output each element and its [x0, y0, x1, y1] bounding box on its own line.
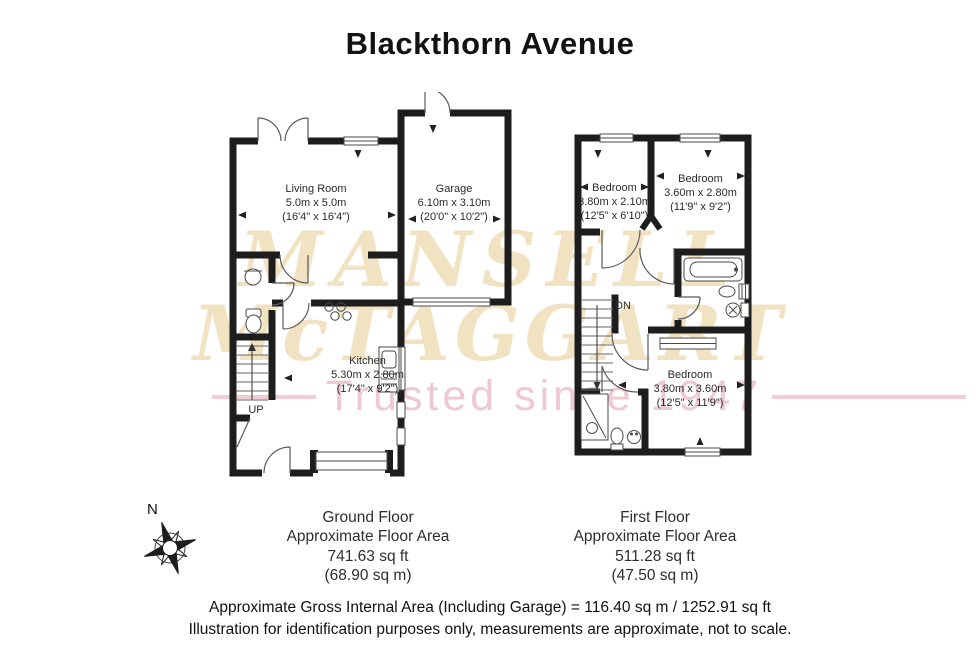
room-size-metric: 5.30m x 2.80m — [295, 368, 440, 382]
area-sqft: 741.63 sq ft — [258, 547, 478, 566]
room-name: Living Room — [231, 182, 401, 196]
compass-rose-icon — [136, 514, 206, 582]
ground-floor-stairs — [236, 343, 268, 400]
shower-room-sink-icon — [628, 431, 641, 444]
room-size-imperial: (17'4" x 9'2") — [295, 382, 440, 396]
ground-floor-walls — [230, 110, 512, 477]
room-size-imperial: (11'9" x 9'2") — [638, 200, 763, 214]
wc-toilet-icon — [246, 309, 261, 333]
compass-north-label: N — [147, 501, 158, 518]
area-label: Approximate Floor Area — [545, 527, 765, 546]
bathroom-sink-icon — [719, 284, 749, 299]
room-size-imperial: (20'0" x 10'2") — [395, 210, 513, 224]
room-size-imperial: (12'5" x 11'9") — [625, 396, 755, 410]
room-label-bedroom-3: Bedroom 3.80m x 3.60m (12'5" x 11'9") — [625, 368, 755, 410]
watermark-rule-right — [772, 395, 966, 399]
bath-icon — [684, 258, 742, 281]
gross-area-text: Approximate Gross Internal Area (Includi… — [0, 599, 980, 617]
shower-room-toilet-icon — [611, 428, 623, 450]
ground-floor-plan — [227, 92, 519, 484]
room-label-living-room: Living Room 5.0m x 5.0m (16'4" x 16'4") — [231, 182, 401, 224]
room-size-metric: 3.80m x 3.60m — [625, 382, 755, 396]
disclaimer-text: Illustration for identification purposes… — [0, 621, 980, 639]
bathroom-toilet-icon — [726, 303, 749, 317]
room-size-imperial: (16'4" x 16'4") — [231, 210, 401, 224]
room-label-kitchen: Kitchen 5.30m x 2.80m (17'4" x 9'2") — [295, 354, 440, 396]
room-label-bedroom-2: Bedroom 3.60m x 2.80m (11'9" x 9'2") — [638, 172, 763, 214]
shower-icon — [581, 394, 608, 440]
room-size-metric: 5.0m x 5.0m — [231, 196, 401, 210]
ground-floor-summary: Ground Floor Approximate Floor Area 741.… — [258, 508, 478, 585]
first-floor-summary: First Floor Approximate Floor Area 511.2… — [545, 508, 765, 585]
room-size-metric: 6.10m x 3.10m — [395, 196, 513, 210]
floor-name: First Floor — [545, 508, 765, 527]
room-label-garage: Garage 6.10m x 3.10m (20'0" x 10'2") — [395, 182, 513, 224]
first-floor-stairs — [581, 300, 613, 390]
page-title: Blackthorn Avenue — [0, 26, 980, 62]
area-label: Approximate Floor Area — [258, 527, 478, 546]
room-size-metric: 3.60m x 2.80m — [638, 186, 763, 200]
stairs-down-label: DN — [606, 300, 640, 312]
room-name: Bedroom — [625, 368, 755, 382]
room-name: Bedroom — [638, 172, 763, 186]
area-sqm: (47.50 sq m) — [545, 566, 765, 585]
room-name: Garage — [395, 182, 513, 196]
area-sqft: 511.28 sq ft — [545, 547, 765, 566]
area-sqm: (68.90 sq m) — [258, 566, 478, 585]
floorplan-page: Blackthorn Avenue MANSELL McTAGGART Trus… — [0, 0, 980, 653]
floor-name: Ground Floor — [258, 508, 478, 527]
wardrobe-icon — [660, 338, 716, 349]
stairs-up-label: UP — [240, 404, 272, 416]
wc-sink-icon — [244, 269, 262, 285]
room-name: Kitchen — [295, 354, 440, 368]
